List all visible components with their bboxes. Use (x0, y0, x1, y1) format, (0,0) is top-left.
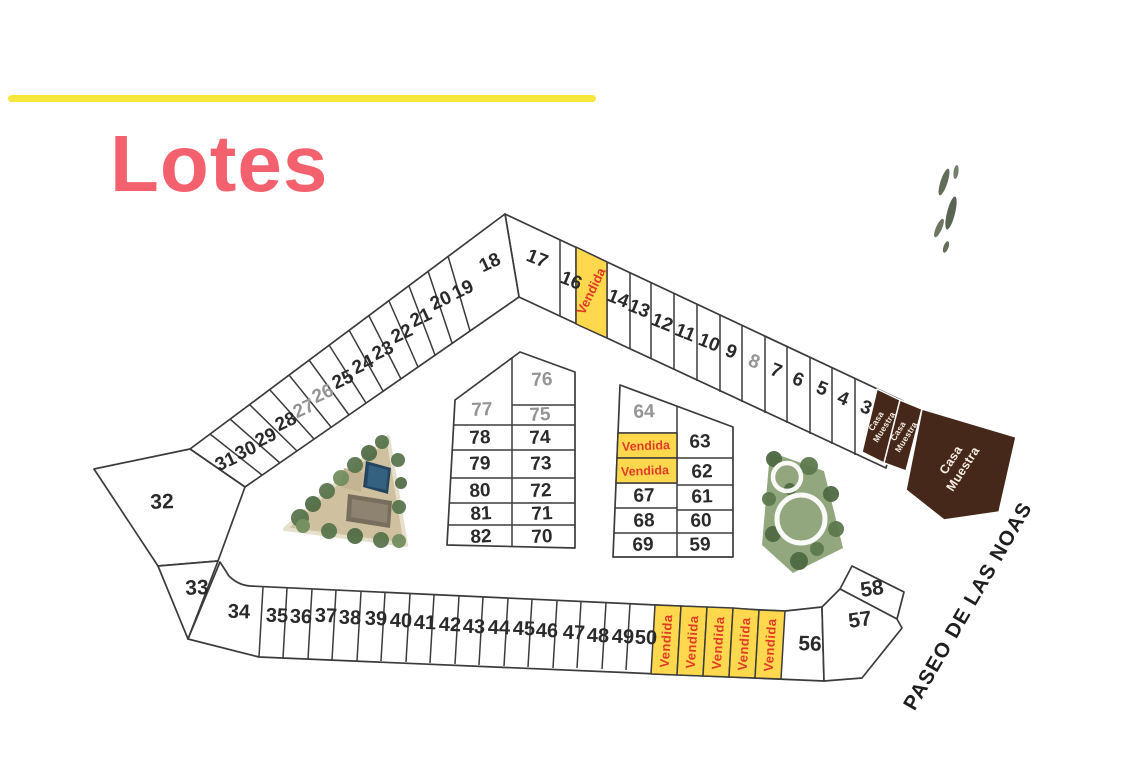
lot-37-label: 37 (314, 605, 337, 628)
lot-32-label: 32 (150, 490, 174, 514)
lot-42-label: 42 (438, 614, 461, 637)
lot-64-label: 64 (633, 401, 655, 423)
park-amenity-area (762, 451, 844, 573)
site-plan: 17 16 14 13 12 11 10 9 8 7 6 5 4 3 Vendi… (0, 0, 1125, 780)
lot-81-label: 81 (470, 503, 493, 525)
lot-61-label: 61 (691, 486, 713, 508)
lot-74-label: 74 (529, 427, 552, 449)
sold-lot-label: Vendida (621, 463, 670, 479)
lot-80-label: 80 (469, 480, 491, 502)
lot-43-label: 43 (462, 616, 485, 639)
lot-45-label: 45 (512, 618, 535, 641)
lot-82-label: 82 (470, 526, 492, 548)
lot-77-label: 77 (471, 399, 493, 421)
lot-62-label: 62 (691, 461, 713, 483)
lot-58-label: 58 (859, 576, 886, 602)
lot-36-label: 36 (289, 606, 312, 629)
lot-72-label: 72 (530, 480, 552, 502)
lot-34-label: 34 (227, 601, 251, 624)
lot-56-label: 56 (798, 632, 822, 656)
lot-68-label: 68 (633, 510, 655, 532)
lot-38-label: 38 (338, 607, 361, 630)
plant-smudge (932, 165, 959, 254)
lot-79-label: 79 (469, 453, 491, 475)
lot-60-label: 60 (690, 510, 712, 532)
lot-46-label: 46 (535, 620, 558, 643)
lot-48-label: 48 (586, 625, 609, 648)
lot-71-label: 71 (531, 503, 554, 525)
lot-67-label: 67 (633, 485, 655, 507)
lot-70-label: 70 (531, 526, 553, 548)
clubhouse-amenity-area (285, 435, 407, 548)
lot-69-label: 69 (632, 534, 654, 556)
lot-39-label: 39 (364, 608, 387, 631)
lot-35-label: 35 (265, 605, 288, 628)
lot-40-label: 40 (389, 610, 412, 633)
lot-59-label: 59 (689, 534, 711, 556)
lot-50-label: 50 (634, 627, 657, 650)
lot-44-label: 44 (487, 617, 511, 640)
lot-49-label: 49 (611, 626, 634, 649)
street-name-label: PASEO DE LAS NOAS (899, 498, 1037, 714)
lot-76-label: 76 (531, 369, 553, 391)
lot-47-label: 47 (562, 622, 585, 645)
lot-73-label: 73 (530, 453, 552, 475)
lot-33-label: 33 (185, 576, 209, 600)
lot-75-label: 75 (529, 404, 552, 426)
lot-57-label: 57 (847, 607, 873, 633)
lot-63-label: 63 (689, 431, 711, 453)
lot-78-label: 78 (469, 427, 491, 449)
sold-lot-label: Vendida (622, 438, 671, 454)
lot-41-label: 41 (413, 612, 436, 635)
